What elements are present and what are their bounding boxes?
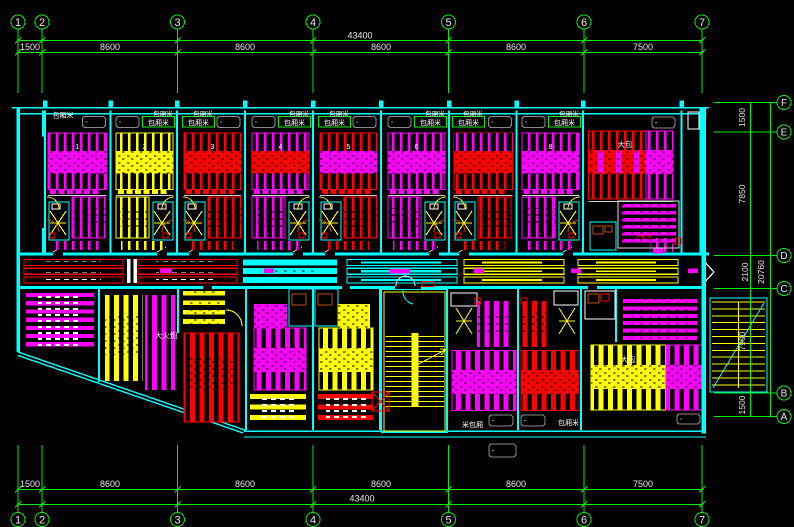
svg-text:E: E bbox=[781, 128, 788, 139]
svg-text:5: 5 bbox=[347, 144, 351, 151]
svg-text:7500: 7500 bbox=[633, 42, 653, 52]
svg-text:7850: 7850 bbox=[737, 184, 747, 203]
svg-text:B: B bbox=[781, 389, 788, 400]
svg-text:7: 7 bbox=[699, 515, 705, 527]
svg-text:4: 4 bbox=[279, 144, 283, 151]
svg-text:1: 1 bbox=[15, 17, 21, 29]
svg-text:1: 1 bbox=[75, 144, 79, 151]
svg-text:6: 6 bbox=[581, 515, 587, 527]
svg-text:3: 3 bbox=[174, 17, 180, 29]
svg-text:8: 8 bbox=[549, 144, 553, 151]
svg-text:7: 7 bbox=[699, 17, 705, 29]
svg-text:3: 3 bbox=[211, 144, 215, 151]
svg-text:5: 5 bbox=[445, 515, 451, 527]
svg-text:包厢米: 包厢米 bbox=[148, 118, 169, 127]
svg-text:包厢米: 包厢米 bbox=[420, 118, 441, 127]
svg-text:8600: 8600 bbox=[235, 42, 255, 52]
svg-text:包厢米: 包厢米 bbox=[554, 118, 575, 127]
svg-text:8600: 8600 bbox=[100, 479, 120, 489]
svg-text:大包: 大包 bbox=[618, 139, 633, 149]
svg-text:大火炮: 大火炮 bbox=[155, 330, 178, 340]
svg-text:包厢米: 包厢米 bbox=[329, 109, 349, 118]
svg-text:8600: 8600 bbox=[506, 479, 526, 489]
svg-text:C: C bbox=[780, 284, 787, 295]
svg-text:包厢米: 包厢米 bbox=[558, 418, 579, 427]
svg-text:6: 6 bbox=[415, 144, 419, 151]
svg-text:2: 2 bbox=[143, 144, 147, 151]
svg-text:8600: 8600 bbox=[371, 42, 391, 52]
svg-text:米包厢: 米包厢 bbox=[462, 420, 483, 429]
svg-text:包厢米: 包厢米 bbox=[53, 111, 74, 120]
svg-text:包厢米: 包厢米 bbox=[463, 109, 483, 118]
svg-text:8600: 8600 bbox=[100, 42, 120, 52]
svg-text:1: 1 bbox=[15, 515, 21, 527]
svg-text:6: 6 bbox=[581, 17, 587, 29]
svg-text:A: A bbox=[781, 412, 788, 423]
svg-text:20760: 20760 bbox=[756, 260, 766, 284]
svg-text:包厢米: 包厢米 bbox=[559, 109, 579, 118]
svg-text:4: 4 bbox=[310, 515, 316, 527]
svg-text:包厢米: 包厢米 bbox=[153, 109, 173, 118]
svg-text:2: 2 bbox=[39, 515, 45, 527]
svg-text:大包: 大包 bbox=[621, 354, 636, 364]
svg-text:包厢米: 包厢米 bbox=[193, 109, 213, 118]
svg-text:8600: 8600 bbox=[235, 479, 255, 489]
svg-text:7500: 7500 bbox=[633, 479, 653, 489]
svg-text:包厢米: 包厢米 bbox=[425, 109, 445, 118]
svg-text:8600: 8600 bbox=[371, 479, 391, 489]
svg-text:D: D bbox=[780, 251, 787, 262]
svg-text:4: 4 bbox=[310, 17, 316, 29]
svg-text:8600: 8600 bbox=[506, 42, 526, 52]
svg-text:1500: 1500 bbox=[737, 108, 747, 127]
svg-text:1500: 1500 bbox=[737, 395, 747, 414]
svg-text:包厢米: 包厢米 bbox=[284, 118, 305, 127]
svg-text:3: 3 bbox=[174, 515, 180, 527]
svg-text:43400: 43400 bbox=[349, 494, 374, 504]
svg-text:F: F bbox=[781, 98, 787, 109]
svg-text:1500: 1500 bbox=[20, 42, 40, 52]
svg-text:包厢米: 包厢米 bbox=[458, 118, 479, 127]
svg-text:包厢米: 包厢米 bbox=[289, 109, 309, 118]
svg-text:2100: 2100 bbox=[740, 262, 750, 281]
svg-text:1500: 1500 bbox=[20, 479, 40, 489]
svg-text:2: 2 bbox=[39, 17, 45, 29]
svg-text:包厢米: 包厢米 bbox=[324, 118, 345, 127]
svg-text:5: 5 bbox=[445, 17, 451, 29]
svg-text:包厢米: 包厢米 bbox=[188, 118, 209, 127]
svg-text:43400: 43400 bbox=[347, 31, 372, 41]
